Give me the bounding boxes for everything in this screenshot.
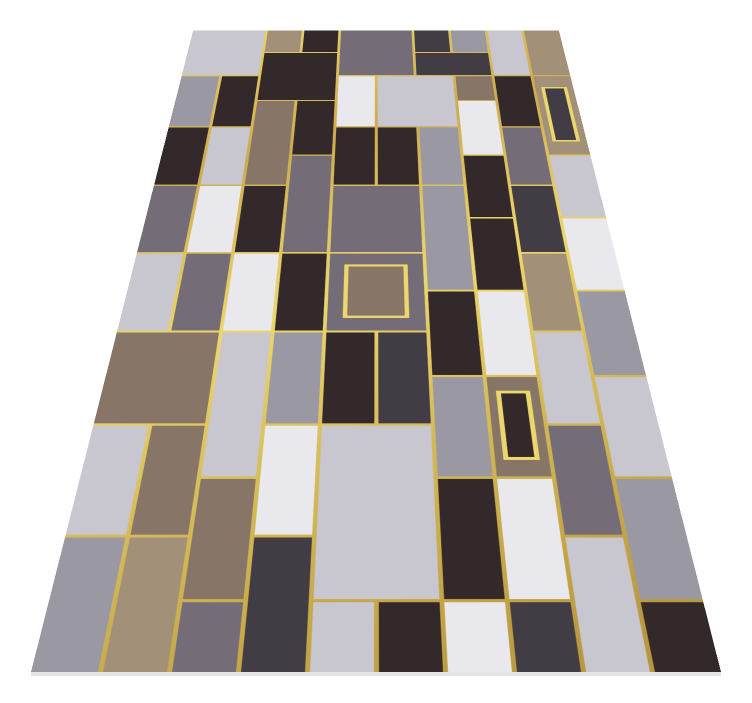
rug-tile [470,218,523,289]
rug-tile [187,186,241,252]
rug-tile [241,537,312,672]
rug-tile [437,479,504,599]
rug-tile [330,186,422,252]
rug-tile-inset [541,87,580,142]
rug-tile [455,76,495,100]
rug-tile [336,76,374,126]
rug-tile [419,127,463,184]
rug-tile [154,127,208,184]
rug-tile [172,602,243,672]
rug-tile [549,156,606,217]
rug-tile [254,425,317,534]
rug-tile [414,30,450,51]
rug-tile [444,602,512,672]
rug-tile [378,602,442,672]
rug-tile [223,254,279,331]
rug-tile [265,332,322,423]
rug-tile [463,156,512,217]
rug-tile [326,254,426,331]
rug-tile [212,76,258,126]
rug-tile [378,332,430,423]
rug-tile [415,53,491,75]
rug-tile [234,186,285,252]
rug-tile [562,218,624,289]
rug-tile [182,30,265,75]
rug-tile [322,332,374,423]
rug-tile [257,53,337,100]
rug-tile-inset [496,391,540,460]
rug-tile [640,602,721,672]
rug-tile [377,76,457,126]
rug-image [31,30,721,672]
rug-tile [333,127,374,184]
rug-tile [477,291,536,374]
rug-tile [486,377,551,476]
rug-tile [292,101,335,154]
rug-tile [458,101,503,154]
rug-tile [302,30,338,51]
rug-tile [378,127,419,184]
rug-tile [313,425,439,598]
rug-tile [422,186,473,290]
rug-tile [169,76,219,126]
rug-tile [432,377,492,476]
rug-tile [487,30,530,75]
rug-tile [428,291,482,374]
rug-tile [282,156,331,252]
rug-tile [274,254,326,331]
rug-tile-inset [342,264,409,318]
rug-tile [509,602,580,672]
rug-tile [524,30,571,75]
rug-tile [494,76,540,126]
rug-tile [310,602,374,672]
rug-tile [339,30,414,75]
product-scene [0,0,752,703]
rug-tile [200,127,250,184]
rug-tile [264,30,301,51]
rug-tile [94,332,219,423]
rug-bottom-edge [31,672,721,676]
rug-tile [450,30,487,51]
